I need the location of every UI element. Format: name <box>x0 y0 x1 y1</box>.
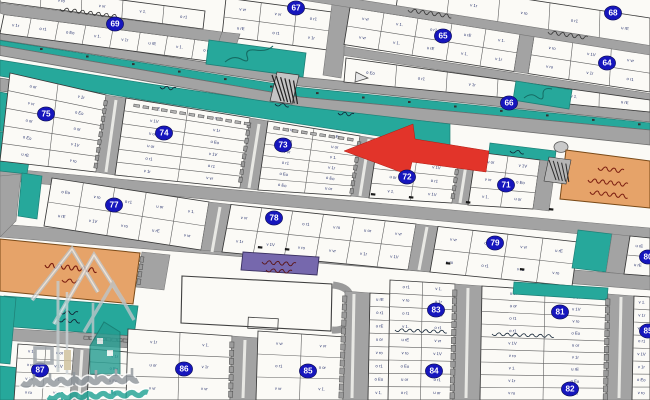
svg-text:64: 64 <box>602 59 612 68</box>
svg-text:v 1V: v 1V <box>508 340 517 346</box>
svg-text:v 1.: v 1. <box>498 37 505 43</box>
svg-text:v 1r: v 1r <box>468 82 476 88</box>
svg-text:u or: u or <box>487 159 495 165</box>
svg-text:v vr: v vr <box>99 3 107 9</box>
svg-text:v 1V: v 1V <box>266 241 275 247</box>
svg-text:o r1: o r1 <box>481 263 489 269</box>
svg-text:v 1.: v 1. <box>139 8 146 14</box>
svg-text:68: 68 <box>608 9 618 18</box>
svg-text:v 1.: v 1. <box>402 324 409 329</box>
svg-text:v 1r: v 1r <box>201 364 209 370</box>
svg-text:82: 82 <box>565 385 575 394</box>
svg-text:u rE: u rE <box>634 262 642 268</box>
svg-text:u rE: u rE <box>237 25 245 31</box>
svg-text:o r1: o r1 <box>509 315 517 320</box>
svg-text:v ro: v ro <box>638 390 646 395</box>
svg-text:73: 73 <box>278 141 288 150</box>
svg-text:v 1V: v 1V <box>433 351 442 357</box>
svg-text:v ro: v ro <box>298 245 306 251</box>
svg-text:v vr: v vr <box>485 177 493 183</box>
svg-text:81: 81 <box>555 308 565 317</box>
svg-text:85: 85 <box>303 367 313 376</box>
svg-text:u rE: u rE <box>376 297 384 302</box>
svg-text:u rE: u rE <box>621 99 629 105</box>
svg-text:77: 77 <box>109 201 119 210</box>
svg-text:v 1.: v 1. <box>188 208 195 214</box>
svg-text:v 1.: v 1. <box>509 365 516 370</box>
svg-text:o Eo: o Eo <box>400 363 410 369</box>
svg-text:75: 75 <box>41 110 51 119</box>
svg-text:v 1r: v 1r <box>12 22 20 28</box>
svg-text:v vr: v vr <box>241 215 249 221</box>
svg-text:u or: u or <box>514 196 522 202</box>
svg-text:v vr: v vr <box>319 343 327 348</box>
svg-text:v vr: v vr <box>329 248 337 254</box>
svg-text:v ro: v ro <box>25 390 33 396</box>
svg-text:u rE: u rE <box>376 323 384 328</box>
svg-text:v 1.: v 1. <box>375 390 382 395</box>
svg-text:80: 80 <box>643 253 650 262</box>
svg-text:v ro: v ro <box>402 297 410 302</box>
svg-text:u or: u or <box>401 377 409 382</box>
svg-text:v 1r: v 1r <box>308 35 316 41</box>
svg-text:v 1.: v 1. <box>387 188 394 194</box>
svg-text:v ro: v ro <box>572 318 580 323</box>
svg-text:79: 79 <box>490 239 500 248</box>
svg-text:o r1: o r1 <box>272 30 280 36</box>
svg-text:74: 74 <box>159 129 169 138</box>
svg-text:83: 83 <box>431 306 441 315</box>
svg-text:65: 65 <box>438 32 448 41</box>
svg-text:v ro: v ro <box>333 224 341 230</box>
svg-text:v vr: v vr <box>395 231 403 237</box>
svg-text:v 1.: v 1. <box>638 299 645 304</box>
svg-text:u rE: u rE <box>401 337 409 342</box>
svg-text:78: 78 <box>269 214 279 223</box>
svg-text:84: 84 <box>429 367 439 376</box>
svg-text:72: 72 <box>402 173 412 182</box>
svg-text:u or: u or <box>572 342 580 347</box>
svg-text:87: 87 <box>35 366 45 375</box>
svg-text:u rE: u rE <box>555 248 563 254</box>
svg-text:o r1: o r1 <box>275 363 283 369</box>
svg-text:v 1r: v 1r <box>638 312 646 317</box>
svg-text:v 1V: v 1V <box>518 163 527 169</box>
svg-text:v 1r: v 1r <box>360 251 368 257</box>
svg-text:o Eo: o Eo <box>637 377 647 383</box>
svg-text:v 1r: v 1r <box>121 37 129 43</box>
svg-text:v ro: v ro <box>376 350 384 355</box>
svg-text:v vr: v vr <box>239 6 247 12</box>
svg-text:v 1r: v 1r <box>236 238 244 244</box>
svg-text:v 1.: v 1. <box>396 21 403 27</box>
svg-text:v ro: v ro <box>508 390 516 395</box>
svg-text:v vr: v vr <box>201 386 209 391</box>
svg-text:v vr: v vr <box>274 11 282 17</box>
svg-text:o r1: o r1 <box>309 16 317 22</box>
svg-text:o r1: o r1 <box>302 221 310 227</box>
svg-text:o r1: o r1 <box>638 338 646 343</box>
svg-text:u or: u or <box>433 390 441 395</box>
svg-text:v 1.: v 1. <box>461 51 468 57</box>
svg-text:u or: u or <box>510 303 518 308</box>
svg-text:v 1.: v 1. <box>435 286 442 291</box>
svg-text:u or: u or <box>319 365 327 371</box>
svg-text:o r1: o r1 <box>434 325 442 330</box>
svg-text:o r1: o r1 <box>180 14 188 20</box>
svg-text:86: 86 <box>179 365 189 374</box>
svg-text:v 1.: v 1. <box>202 342 209 347</box>
svg-text:v 1r: v 1r <box>150 339 158 345</box>
svg-text:v 1.: v 1. <box>318 386 325 391</box>
svg-text:67: 67 <box>291 4 301 13</box>
svg-text:66: 66 <box>504 99 514 108</box>
svg-text:v vr: v vr <box>275 386 283 391</box>
svg-text:v 1V: v 1V <box>637 351 646 357</box>
svg-text:o r1: o r1 <box>39 26 47 32</box>
svg-text:v ro: v ro <box>401 350 409 355</box>
svg-text:v 1r: v 1r <box>508 378 516 383</box>
svg-text:u or: u or <box>149 362 157 368</box>
svg-text:o r1: o r1 <box>402 310 410 315</box>
svg-text:o r1: o r1 <box>375 363 383 368</box>
svg-text:v 1.: v 1. <box>94 33 101 39</box>
svg-text:v vr: v vr <box>149 385 157 390</box>
svg-text:o r1: o r1 <box>401 390 409 395</box>
svg-text:o r1: o r1 <box>402 284 410 289</box>
svg-text:u rE: u rE <box>571 366 579 371</box>
svg-text:v 1.: v 1. <box>176 44 183 50</box>
svg-text:v ro: v ro <box>509 353 517 358</box>
svg-text:v 1V: v 1V <box>390 254 399 260</box>
svg-text:o Eo: o Eo <box>374 376 384 381</box>
svg-text:v 1V: v 1V <box>572 306 581 312</box>
svg-text:u or: u or <box>376 337 384 342</box>
svg-text:o r1: o r1 <box>509 328 517 333</box>
svg-text:o Eo: o Eo <box>571 330 581 336</box>
svg-text:u rE: u rE <box>148 40 156 46</box>
svg-text:o r1: o r1 <box>376 310 384 315</box>
svg-text:u or: u or <box>364 228 372 234</box>
svg-text:v vr: v vr <box>276 341 284 346</box>
svg-text:69: 69 <box>110 20 120 29</box>
svg-text:v 1.: v 1. <box>393 40 400 46</box>
svg-text:v 1r: v 1r <box>638 364 646 369</box>
svg-text:85: 85 <box>643 327 650 336</box>
svg-text:v ro: v ro <box>552 270 560 276</box>
svg-text:71: 71 <box>501 181 511 190</box>
svg-text:v 1r: v 1r <box>572 354 580 359</box>
svg-text:u rE: u rE <box>635 243 643 249</box>
svg-text:v 1.: v 1. <box>482 194 489 200</box>
svg-text:v vr: v vr <box>434 338 442 343</box>
svg-text:v vr: v vr <box>450 237 458 243</box>
svg-text:v vr: v vr <box>520 244 528 250</box>
